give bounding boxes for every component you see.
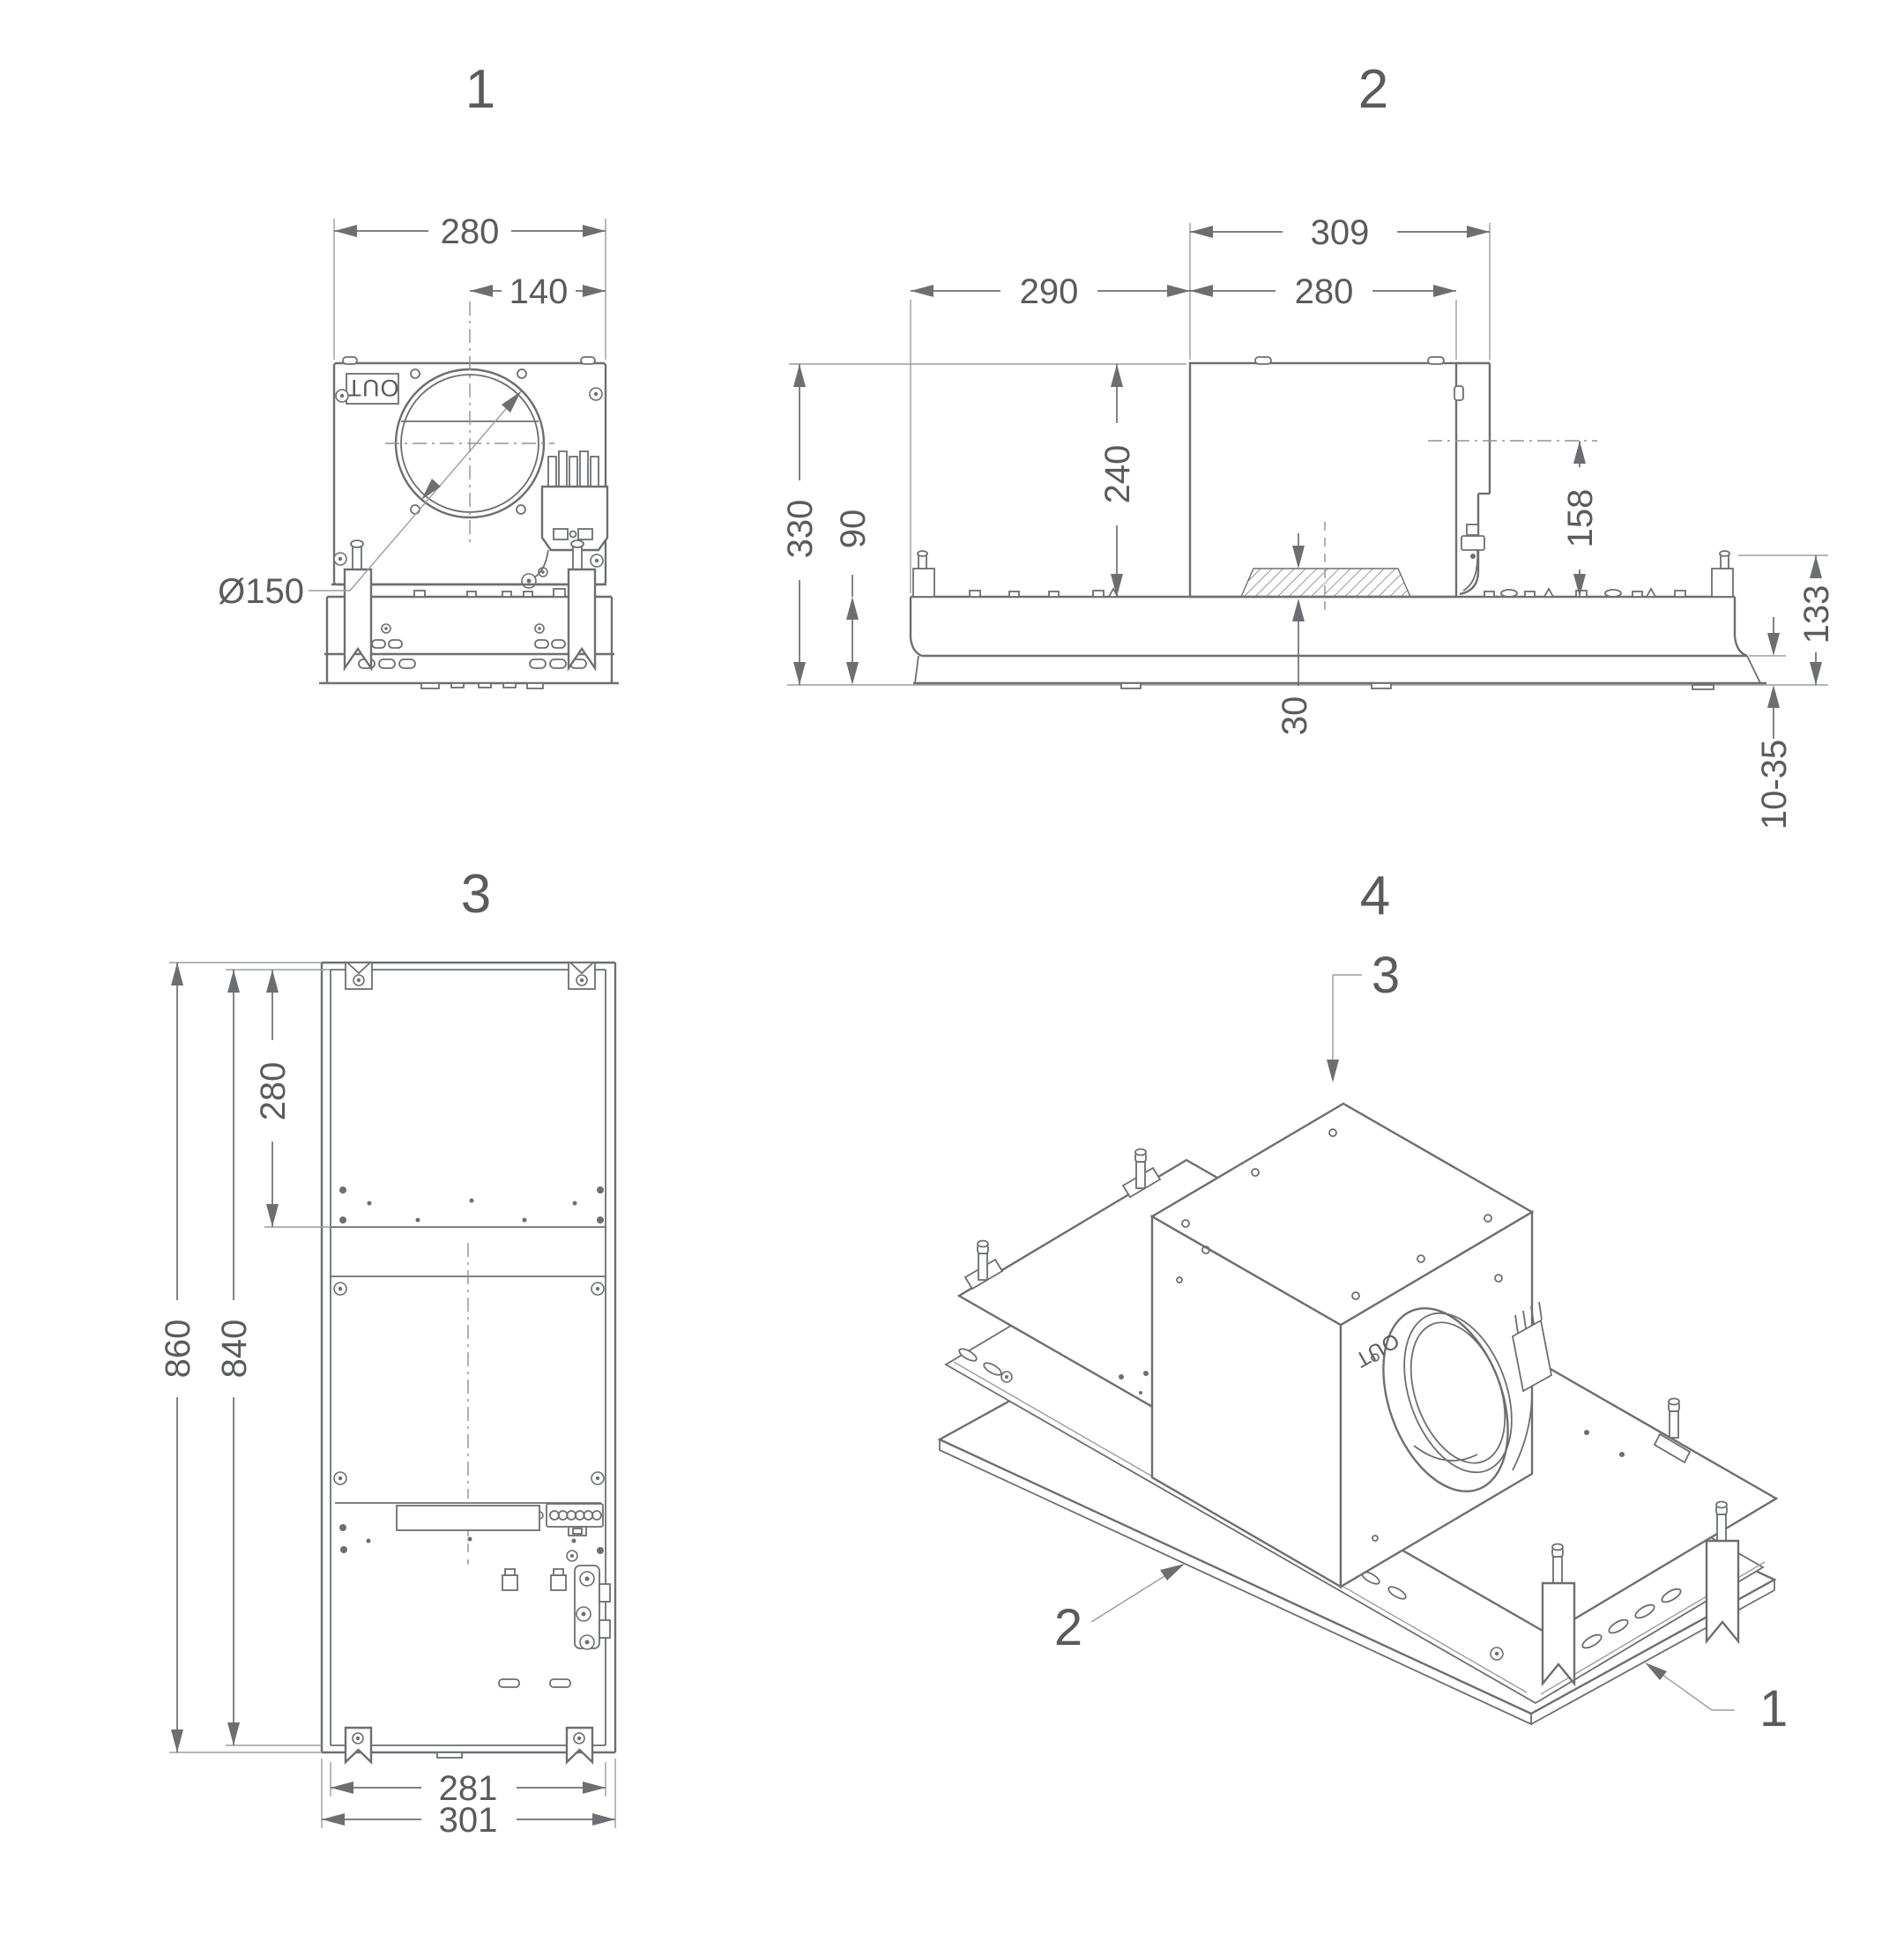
view-iso-title: 4 (1360, 866, 1390, 926)
dim-side-309: 309 (1311, 213, 1370, 252)
terminal-strip-bottom (397, 1504, 603, 1536)
dim-side-133: 133 (1797, 585, 1836, 644)
view-isometric: OUT 3 2 (940, 947, 1788, 1737)
dim-side-280: 280 (1295, 272, 1354, 311)
dim-bottom-280: 280 (254, 1062, 293, 1121)
fan-body-side (1190, 357, 1463, 597)
technical-drawing-sheet: 1 2 3 4 OUT (0, 0, 1904, 1934)
view-bottom: 860 840 280 281 301 (159, 963, 615, 1840)
stud-left-side (913, 551, 934, 597)
dim-bottom-840: 840 (215, 1320, 254, 1379)
bottom-dimensions: 860 840 280 281 301 (159, 963, 615, 1840)
dim-side-240: 240 (1098, 445, 1137, 504)
view-side-title: 2 (1358, 59, 1388, 120)
out-label: OUT (346, 375, 399, 401)
callout-motor-unit: 3 (1372, 947, 1400, 1004)
bottom-hole-pattern (339, 1186, 604, 1224)
dim-front-width: 280 (441, 212, 500, 251)
view-bottom-title: 3 (461, 864, 491, 925)
dim-front-half-width: 140 (509, 272, 569, 311)
dim-side-30: 30 (1276, 696, 1314, 736)
callout-tray: 2 (1054, 1599, 1082, 1656)
view-side-elevation: 309 290 280 330 90 240 (781, 213, 1836, 829)
stud-right-side (1712, 551, 1733, 597)
view-front-title: 1 (465, 59, 495, 120)
dim-side-ceiling: 10-35 (1755, 740, 1794, 829)
dim-bottom-301: 301 (439, 1801, 498, 1840)
dim-side-90: 90 (834, 510, 873, 549)
top-hanger-brackets (346, 963, 595, 989)
dim-side-330: 330 (781, 500, 820, 559)
bottom-small-details (339, 1524, 604, 1687)
view-front-elevation: OUT (218, 212, 619, 688)
callout-frame: 1 (1759, 1680, 1788, 1737)
dim-bottom-860: 860 (159, 1320, 197, 1379)
mounting-tray-side (787, 589, 1828, 689)
out-badge: OUT (346, 374, 399, 404)
dim-side-158: 158 (1561, 489, 1600, 548)
dim-duct-diameter: Ø150 (218, 572, 304, 611)
dim-side-290: 290 (1020, 272, 1079, 311)
latch-mechanism (575, 1566, 610, 1649)
